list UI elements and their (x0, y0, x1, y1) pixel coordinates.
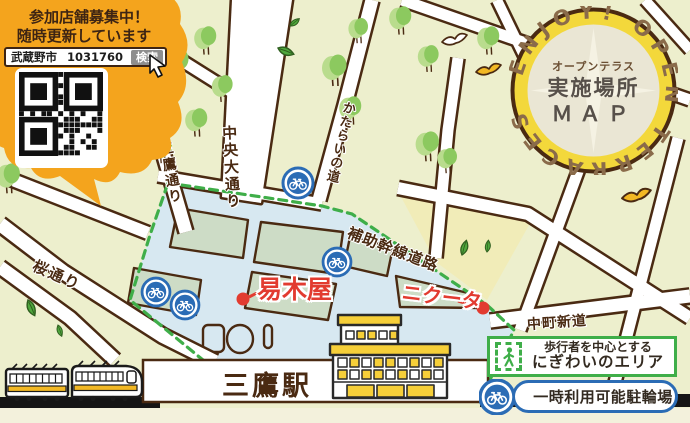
street-label-chuo-odori: 中央大通り (219, 125, 244, 211)
pedestrian-icon (501, 347, 517, 367)
cursor-icon (146, 53, 170, 79)
legend-area-line2: にぎわいのエリア (522, 354, 674, 372)
legend-pedestrian-area: 歩行者を中心とする にぎわいのエリア (487, 336, 677, 377)
badge-map-word: ＭＡＰ (509, 98, 678, 128)
open-terrace-badge: ENJOY! OPEN TERRACES オープンテラス 実施場所 ＭＡＰ (509, 6, 678, 175)
legend-bicycle-parking: 一時利用可能駐輪場 (512, 380, 678, 413)
bubble-line1: 参加店舗募集中！ (0, 6, 178, 27)
recruiting-speech-bubble: 参加店舗募集中！ 随時更新しています 武蔵野市 1031760 検索 (0, 0, 210, 220)
station-name: 三鷹駅 (204, 364, 330, 403)
bicycle-parking-icon (171, 291, 199, 319)
pedestrian-area-swatch (495, 342, 522, 371)
bicycle-parking-icon (479, 379, 515, 415)
bicycle-parking-icon (283, 168, 313, 198)
bubble-line2: 随時更新しています (0, 25, 173, 46)
street-label-nakacho-shindo: 中町新道 (526, 310, 587, 334)
open-terrace-map: 中央大通り 三鷹通り かたらいの道 桜通り 補助幹線道路 中町新道 易木屋 ニク… (0, 0, 690, 423)
search-bar[interactable]: 武蔵野市 1031760 検索 (4, 47, 167, 67)
search-city-text: 武蔵野市 (11, 49, 57, 65)
shop-label-1: 易木屋 (257, 270, 332, 306)
legend-bicycle-label: 一時利用可能駐輪場 (533, 386, 673, 407)
search-code-text: 1031760 (67, 50, 131, 64)
bicycle-parking-icon (142, 278, 170, 306)
qr-code (15, 68, 108, 168)
